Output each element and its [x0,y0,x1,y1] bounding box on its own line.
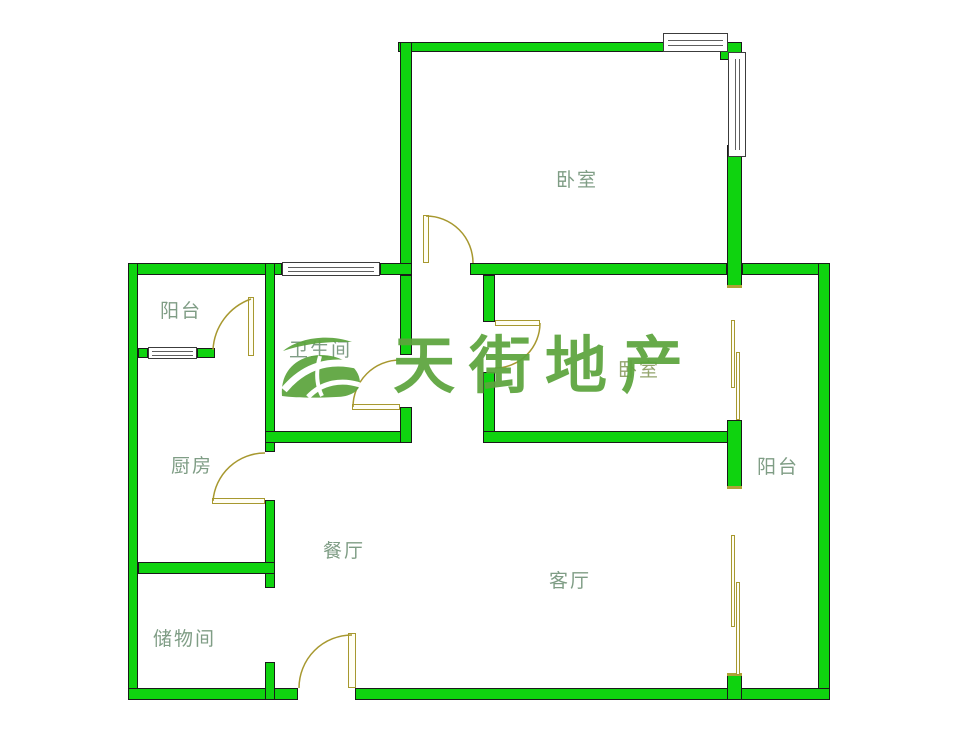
room-label-balcony-right: 阳台 [757,452,799,479]
sliding-door-leaf-bedroom2-a [731,320,735,388]
door-panel-kitchen [212,498,265,504]
wall-bedroom2-south [483,431,742,443]
room-label-balcony-top-left: 阳台 [160,296,202,323]
room-label-kitchen: 厨房 [171,451,213,478]
door-panel-entry [348,633,356,688]
door-panel-balcony-kitchen [248,297,254,356]
wall-bathroom-south [265,431,412,443]
wall-storage-east-stub [265,662,275,700]
window-top-bedroom-east [728,52,746,157]
wall-balcony2-divider-south [727,675,742,700]
door-panel-top-bedroom [423,215,429,263]
wall-bedroom2-west-upper [483,275,495,322]
wall-bathroom-east-lower [400,407,412,443]
room-label-living: 客厅 [549,566,591,593]
wall-kitchen-east-upper [265,263,275,452]
wall-mid-band-left [128,263,282,275]
wall-balcony-south-b [197,348,215,358]
floorplan-canvas: 卧室 阳台 卫生间 卧室 阳台 厨房 餐厅 客厅 储物间 天街地产 [0,0,972,739]
door-arc-kitchen [213,453,265,501]
window-bathroom-north [282,262,380,276]
wall-mid-band-bath [380,263,412,275]
wall-outer-east [818,263,830,700]
wall-mid-band-right [742,263,830,275]
wall-outer-south-right [355,688,830,700]
window-balcony-south [148,347,197,359]
wall-outer-west [128,263,138,700]
wall-top-bedroom-north [398,42,665,52]
brand-logo-icon [276,330,391,410]
sliding-door-leaf-living-a [731,535,735,627]
wall-balcony-south-a [138,348,148,358]
room-label-bedroom-top: 卧室 [556,165,598,192]
brand-watermark-text: 天街地产 [393,336,697,398]
wall-top-bedroom-east [727,145,742,287]
brand-watermark: 天街地产 [276,330,716,410]
wall-kitchen-south [138,562,275,574]
wall-balcony2-divider-mid [727,420,742,488]
sliding-door-leaf-living-b [736,582,740,675]
door-arc-balcony-kitchen [213,299,251,350]
window-top-bedroom-north [663,33,728,52]
sliding-track-cap-mid [727,486,742,489]
room-label-storage: 储物间 [153,624,216,651]
door-arc-top-bedroom [426,216,473,263]
wall-kitchen-east-lower [265,500,275,588]
room-label-dining: 餐厅 [323,536,365,563]
wall-mid-band-center [470,263,727,275]
sliding-track-cap-top [727,285,742,288]
wall-top-bedroom-west [400,42,412,275]
sliding-door-leaf-bedroom2-b [736,352,740,420]
door-panel-bedroom2 [495,320,540,326]
door-arc-entry [299,635,352,688]
